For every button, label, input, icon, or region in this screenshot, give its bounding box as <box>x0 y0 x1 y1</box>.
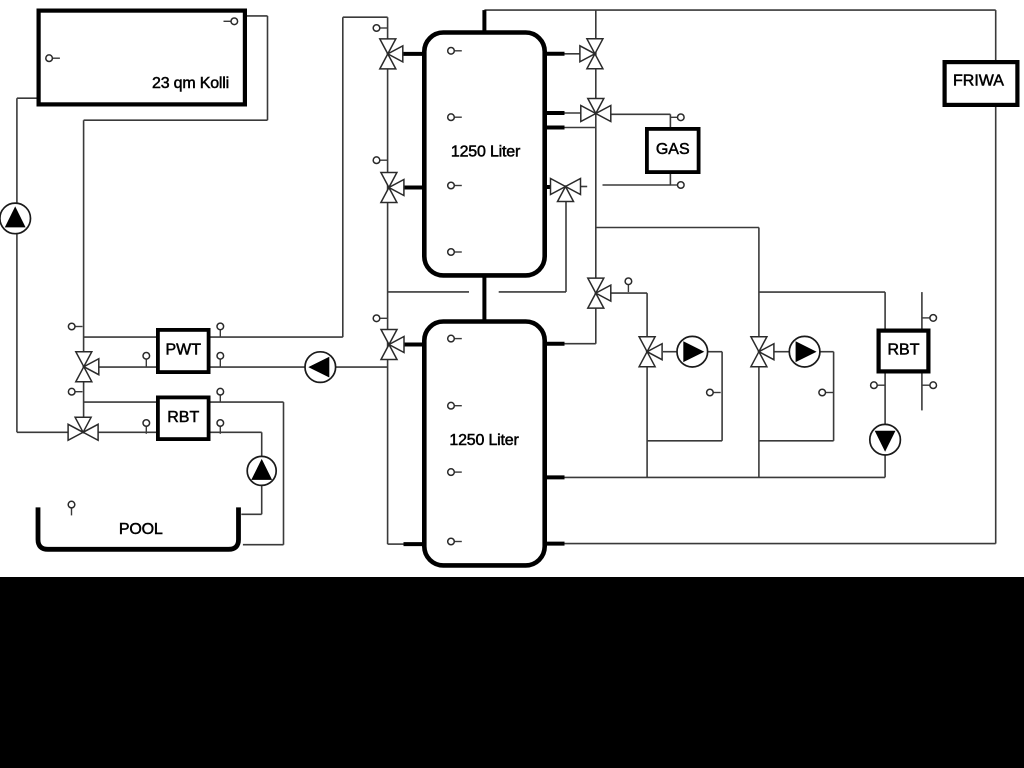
svg-text:RBT: RBT <box>888 342 920 359</box>
svg-text:POOL: POOL <box>119 521 163 538</box>
svg-text:RBT: RBT <box>167 409 199 426</box>
svg-text:PWT: PWT <box>165 342 201 359</box>
svg-text:FRIWA: FRIWA <box>953 72 1004 89</box>
svg-text:23 qm Kolli: 23 qm Kolli <box>152 75 229 92</box>
svg-text:1250 Liter: 1250 Liter <box>451 143 521 160</box>
svg-text:1250 Liter: 1250 Liter <box>449 432 519 449</box>
svg-text:GAS: GAS <box>656 141 690 158</box>
